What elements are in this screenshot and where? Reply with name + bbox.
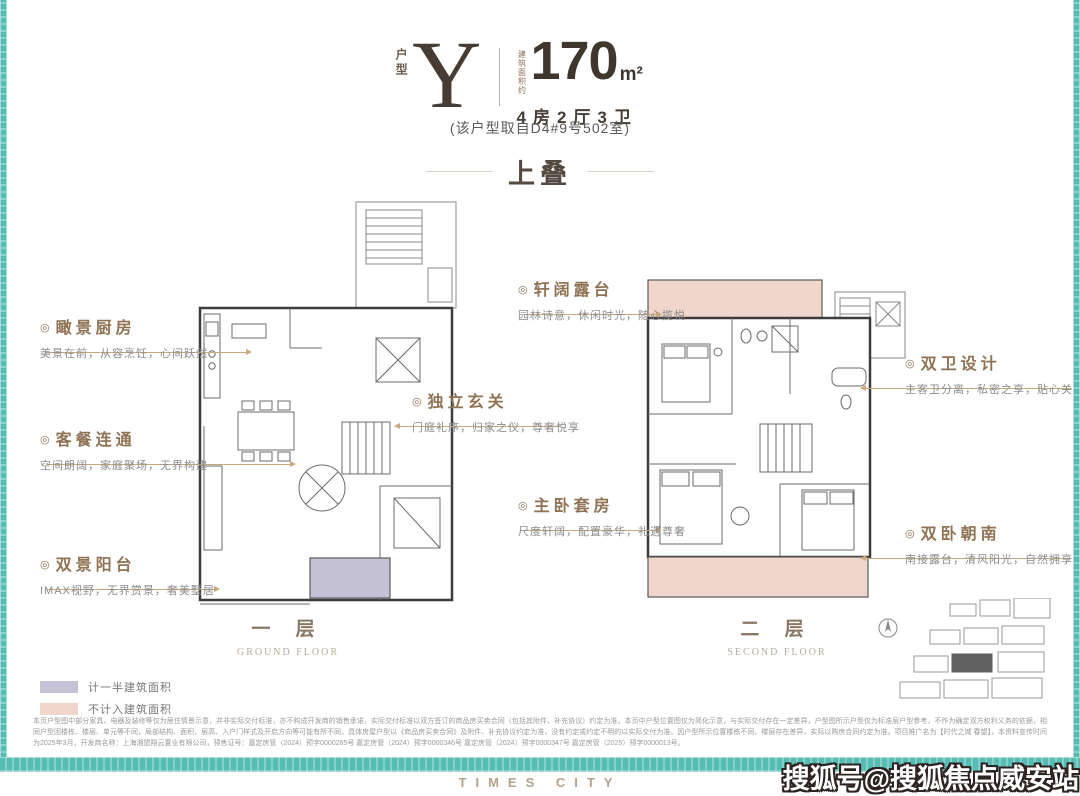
callout-baths-desc: 主客卫分离，私密之享，贴心关照 bbox=[905, 381, 1080, 397]
callout-south: ◎双卧朝南 南接露台，清风阳光，自然拥享 bbox=[905, 520, 1073, 567]
callout-south-desc: 南接露台，清风阳光，自然拥享 bbox=[905, 551, 1073, 567]
callout-foyer-desc: 门庭礼序，归家之仪，尊奢悦享 bbox=[412, 419, 580, 435]
floor-label-second: 二 层 SECOND FLOOR bbox=[727, 614, 826, 658]
terrace-bottom-fill bbox=[648, 557, 868, 597]
floor-label-ground: 一 层 GROUND FLOOR bbox=[237, 614, 339, 658]
unit-letter: Y bbox=[412, 36, 481, 115]
bullet-icon: ◎ bbox=[518, 284, 528, 296]
highlighted-building bbox=[952, 654, 992, 672]
callout-kitchen-desc: 美景在前，从容烹饪，心间跃然 bbox=[40, 345, 208, 361]
bullet-icon: ◎ bbox=[40, 434, 50, 446]
site-plan-map bbox=[858, 598, 1058, 710]
callout-baths-title: 双卫设计 bbox=[921, 356, 1001, 373]
unit-type-label: 户型 bbox=[393, 48, 410, 78]
bullet-icon: ◎ bbox=[40, 322, 50, 334]
callout-dining: ◎客餐连通 空间朗阔，家庭聚场，无界构建 bbox=[40, 426, 208, 473]
legend-label-half-area: 计一半建筑面积 bbox=[88, 679, 172, 695]
unit-header: 户型 Y 建筑面积约 170 m² 4房2厅3卫 bbox=[0, 36, 1080, 128]
bullet-icon: ◎ bbox=[905, 358, 915, 370]
title-line-left bbox=[426, 171, 492, 172]
unit-source-note: (该户型取自D4#9号502室) bbox=[0, 118, 1080, 138]
bullet-icon: ◎ bbox=[518, 500, 528, 512]
legend-item-half-area: 计一半建筑面积 bbox=[40, 679, 172, 695]
legend-swatch-excluded-area bbox=[40, 703, 78, 715]
floor-ground-name: 一 层 bbox=[237, 614, 339, 641]
bullet-icon: ◎ bbox=[905, 528, 915, 540]
title-line-right bbox=[588, 171, 654, 172]
balcony-half-area-fill bbox=[310, 558, 390, 598]
floor-second-name-en: SECOND FLOOR bbox=[727, 647, 826, 658]
callout-master: ◎主卧套房 尺度轩阔，配置豪华，礼遇尊奢 bbox=[518, 492, 686, 539]
callout-terrace: ◎轩阔露台 园林诗意，休闲时光，随心揽悦 bbox=[518, 276, 686, 323]
area-unit: m² bbox=[620, 64, 643, 86]
area-value: 170 bbox=[530, 36, 617, 87]
callout-terrace-title: 轩阔露台 bbox=[534, 282, 614, 299]
callout-dining-title: 客餐连通 bbox=[56, 432, 136, 449]
bullet-icon: ◎ bbox=[40, 559, 50, 571]
callout-balcony: ◎双景阳台 IMAX视野，无界赏景，奢美墅居 bbox=[40, 551, 215, 598]
callout-foyer-title: 独立玄关 bbox=[428, 394, 508, 411]
callout-balcony-title: 双景阳台 bbox=[56, 557, 136, 574]
legend-item-excluded-area: 不计入建筑面积 bbox=[40, 701, 172, 717]
teal-border-left bbox=[0, 0, 7, 772]
callout-kitchen-title: 瞰景厨房 bbox=[56, 320, 136, 337]
teal-border-right bbox=[1073, 0, 1080, 772]
floor-plan-second bbox=[640, 274, 940, 604]
callout-balcony-desc: IMAX视野，无界赏景，奢美墅居 bbox=[40, 582, 215, 598]
callout-master-desc: 尺度轩阔，配置豪华，礼遇尊奢 bbox=[518, 523, 686, 539]
area-label: 建筑面积约 bbox=[516, 50, 527, 95]
bullet-icon: ◎ bbox=[412, 396, 422, 408]
callout-foyer: ◎独立玄关 门庭礼序，归家之仪，尊奢悦享 bbox=[412, 388, 580, 435]
sohu-watermark: 搜狐号@搜狐焦点威安站 bbox=[783, 757, 1079, 796]
compass-icon bbox=[879, 619, 897, 637]
callout-dining-desc: 空间朗阔，家庭聚场，无界构建 bbox=[40, 457, 208, 473]
disclaimer-text: 本页户型图中部分家具、电器及装修等仅为居住情景示意，并非实际交付标准，亦不构成开… bbox=[33, 716, 1047, 750]
floor-ground-name-en: GROUND FLOOR bbox=[237, 647, 339, 658]
legend-swatch-half-area bbox=[40, 681, 78, 693]
header-divider bbox=[499, 48, 500, 106]
floor-second-name: 二 层 bbox=[727, 614, 826, 641]
section-title-text: 上叠 bbox=[508, 152, 572, 191]
callout-south-title: 双卧朝南 bbox=[921, 526, 1001, 543]
legend-label-excluded-area: 不计入建筑面积 bbox=[88, 701, 172, 717]
callout-baths: ◎双卫设计 主客卫分离，私密之享，贴心关照 bbox=[905, 350, 1080, 397]
callout-kitchen: ◎瞰景厨房 美景在前，从容烹饪，心间跃然 bbox=[40, 314, 208, 361]
callout-master-title: 主卧套房 bbox=[534, 498, 614, 515]
callout-terrace-desc: 园林诗意，休闲时光，随心揽悦 bbox=[518, 307, 686, 323]
section-title: 上叠 bbox=[0, 152, 1080, 191]
